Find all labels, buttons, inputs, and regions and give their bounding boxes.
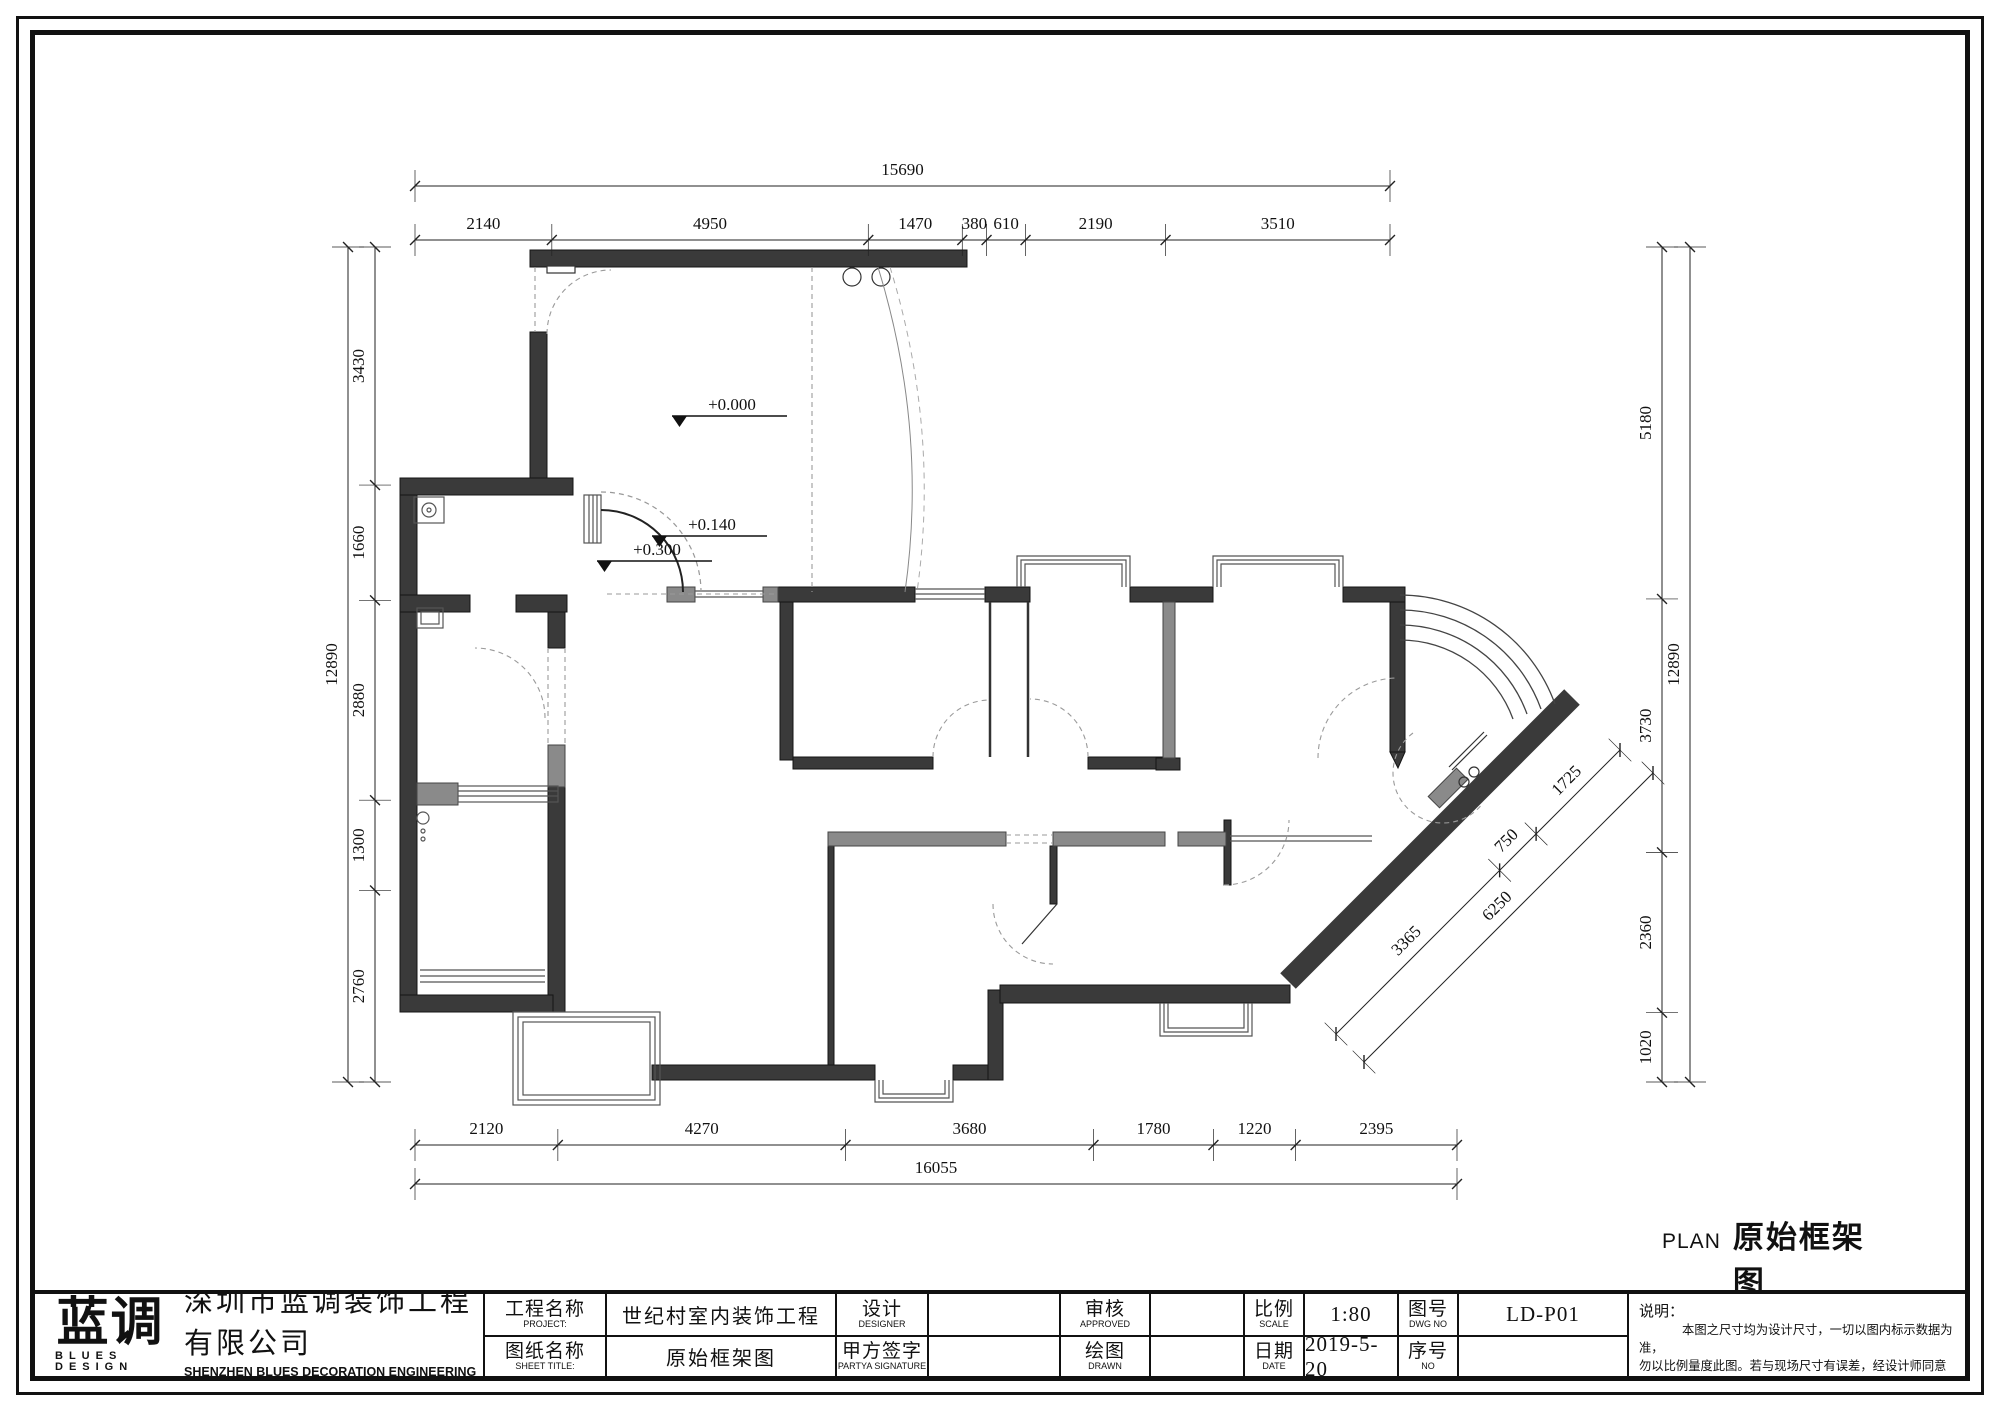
dim-label: 5180 — [1636, 406, 1655, 440]
dim-label: 4270 — [685, 1119, 719, 1138]
approved-label-cn: 审核 — [1085, 1300, 1125, 1320]
designer-value-cell — [927, 1294, 1059, 1335]
dwgno-value: LD-P01 — [1506, 1302, 1580, 1327]
drawn-label-cn: 绘图 — [1085, 1342, 1125, 1362]
dim-label: 1020 — [1636, 1030, 1655, 1064]
sheet-label-cn: 图纸名称 — [505, 1342, 585, 1362]
dim-label: 2120 — [469, 1119, 503, 1138]
scale-value: 1:80 — [1330, 1302, 1371, 1327]
dim-label: 2880 — [349, 683, 368, 717]
no-label-cell: 序号 NO — [1397, 1335, 1457, 1376]
no-label-en: NO — [1421, 1362, 1435, 1372]
project-value: 世纪村室内装饰工程 — [622, 1300, 820, 1329]
dim-label: 1300 — [349, 828, 368, 862]
logo-en: BLUES DESIGN — [55, 1351, 166, 1373]
scale-label-cell: 比例 SCALE — [1243, 1294, 1303, 1335]
dim-label: 1220 — [1238, 1119, 1272, 1138]
project-label-en: PROJECT: — [523, 1320, 567, 1330]
partya-label-cell: 甲方签字 PARTYA SIGNATURE — [835, 1335, 927, 1376]
dim-label: 2190 — [1079, 214, 1113, 233]
dim-label: 3365 — [1387, 922, 1424, 959]
dwgno-label-cn: 图号 — [1408, 1300, 1448, 1320]
dim-label: 1470 — [898, 214, 932, 233]
dim-label: 3730 — [1636, 709, 1655, 743]
drawn-value-cell — [1149, 1335, 1243, 1376]
dim-label: 750 — [1490, 825, 1521, 856]
dim-label: 6250 — [1478, 887, 1515, 924]
notes-cell: 说明： 本图之尺寸均为设计尺寸，一切以图内标示数据为准， 勿以比例量度此图。若与… — [1627, 1294, 1965, 1376]
partya-value-cell — [927, 1335, 1059, 1376]
sheet-label-en: SHEET TITLE: — [515, 1362, 574, 1372]
drawn-label-en: DRAWN — [1088, 1362, 1122, 1372]
title-block: 蓝调 BLUES DESIGN 深圳市蓝调装饰工程有限公司 SHENZHEN B… — [35, 1290, 1965, 1376]
floor-plan-svg: 2140495014703806102190351015690212042703… — [0, 0, 2000, 1411]
dim-label: 2395 — [1359, 1119, 1393, 1138]
dimension-layer: 2140495014703806102190351015690212042703… — [322, 160, 1706, 1200]
notes-line: 勿以比例量度此图。若与现场尺寸有误差，经设计师同意后，可根 — [1639, 1358, 1955, 1376]
project-value-cell: 世纪村室内装饰工程 — [605, 1294, 835, 1335]
project-label-cn: 工程名称 — [505, 1300, 585, 1320]
approved-label-cell: 审核 APPROVED — [1059, 1294, 1149, 1335]
dim-label: 16055 — [915, 1158, 958, 1177]
dim-label: 3510 — [1261, 214, 1295, 233]
logo-cn: 蓝调 — [57, 1297, 165, 1349]
drawn-label-cell: 绘图 DRAWN — [1059, 1335, 1149, 1376]
sheet-label-cell: 图纸名称 SHEET TITLE: — [483, 1335, 605, 1376]
scale-label-cn: 比例 — [1254, 1300, 1294, 1320]
designer-label-en: DESIGNER — [858, 1320, 905, 1330]
dashed-layer — [475, 267, 1483, 964]
level-markers-layer: +0.000+0.140+0.300 — [597, 395, 787, 572]
plan-caption-title: 原始框架图 — [1733, 1212, 1880, 1302]
scale-value-cell: 1:80 — [1303, 1294, 1397, 1335]
project-label-cell: 工程名称 PROJECT: — [483, 1294, 605, 1335]
date-label-en: DATE — [1262, 1362, 1285, 1372]
company-name-en: SHENZHEN BLUES DECORATION ENGINEERING CO… — [184, 1365, 483, 1377]
level-label: +0.000 — [708, 395, 756, 414]
date-value-cell: 2019-5-20 — [1303, 1335, 1397, 1376]
notes-title: 说明： — [1639, 1300, 1684, 1321]
gray-walls-layer — [417, 587, 1468, 846]
dim-label: 610 — [993, 214, 1019, 233]
scale-label-en: SCALE — [1259, 1320, 1289, 1330]
dim-label: 15690 — [881, 160, 924, 179]
dim-label: 12890 — [322, 643, 341, 686]
dim-label: 3680 — [953, 1119, 987, 1138]
dim-label: 12890 — [1664, 643, 1683, 686]
level-label: +0.300 — [633, 540, 681, 559]
partya-label-cn: 甲方签字 — [842, 1342, 922, 1362]
date-label-cn: 日期 — [1254, 1342, 1294, 1362]
notes-line: 本图之尺寸均为设计尺寸，一切以图内标示数据为准， — [1639, 1322, 1955, 1358]
no-value-cell — [1457, 1335, 1627, 1376]
level-label: +0.140 — [688, 515, 736, 534]
designer-label-cell: 设计 DESIGNER — [835, 1294, 927, 1335]
company-names: 深圳市蓝调装饰工程有限公司 SHENZHEN BLUES DECORATION … — [184, 1294, 483, 1376]
drawing-sheet: 2140495014703806102190351015690212042703… — [0, 0, 2000, 1411]
dwgno-value-cell: LD-P01 — [1457, 1294, 1627, 1335]
company-cell: 蓝调 BLUES DESIGN 深圳市蓝调装饰工程有限公司 SHENZHEN B… — [35, 1294, 483, 1376]
dim-label: 3430 — [349, 349, 368, 383]
company-name-cn: 深圳市蓝调装饰工程有限公司 — [184, 1294, 483, 1362]
arcs-layer — [601, 267, 1555, 719]
dim-label: 2760 — [349, 969, 368, 1003]
plan-caption-tag: PLAN — [1662, 1230, 1721, 1254]
dwgno-label-en: DWG NO — [1409, 1320, 1447, 1330]
date-value: 2019-5-20 — [1305, 1335, 1397, 1376]
sheet-value-cell: 原始框架图 — [605, 1335, 835, 1376]
no-label-cn: 序号 — [1408, 1342, 1448, 1362]
dim-label: 1725 — [1548, 762, 1585, 799]
dim-label: 2140 — [466, 214, 500, 233]
dwgno-label-cell: 图号 DWG NO — [1397, 1294, 1457, 1335]
date-label-cell: 日期 DATE — [1243, 1335, 1303, 1376]
designer-label-cn: 设计 — [862, 1300, 902, 1320]
dim-label: 380 — [962, 214, 988, 233]
partya-label-en: PARTYA SIGNATURE — [838, 1362, 926, 1372]
dim-label: 2360 — [1636, 916, 1655, 950]
sheet-value: 原始框架图 — [666, 1342, 776, 1371]
approved-label-en: APPROVED — [1080, 1320, 1130, 1330]
dim-label: 4950 — [693, 214, 727, 233]
windows-layer — [414, 266, 1487, 1105]
approved-value-cell — [1149, 1294, 1243, 1335]
dim-label: 1780 — [1136, 1119, 1170, 1138]
company-logo: 蓝调 BLUES DESIGN — [55, 1297, 166, 1373]
dim-label: 1660 — [349, 526, 368, 560]
